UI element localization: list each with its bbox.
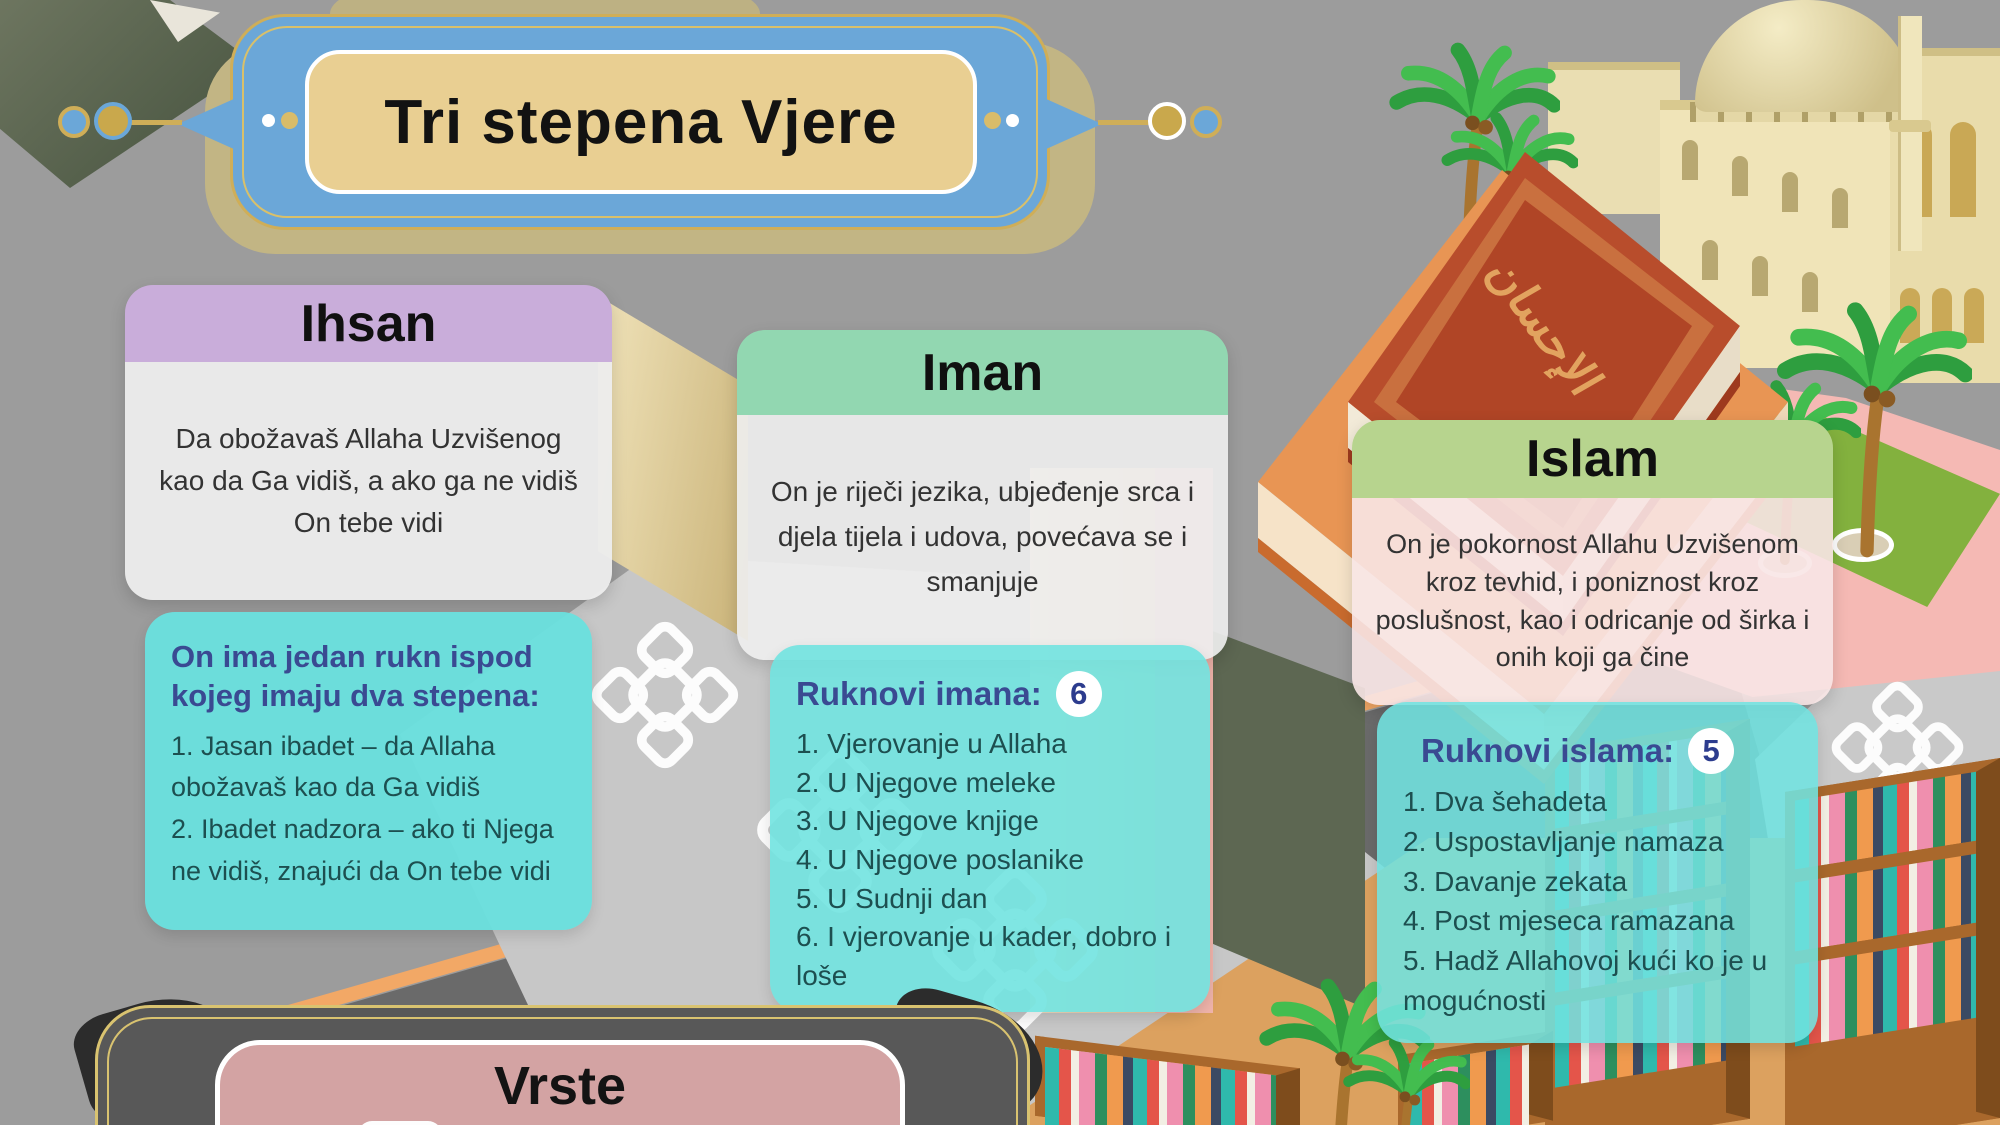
note-ihsan-heading: On ima jedan rukn ispod kojeg imaju dva … (171, 638, 568, 716)
card-iman: Iman On je riječi jezika, ubjeđenje srca… (737, 330, 1228, 660)
mosque-minaret-balcony (1889, 120, 1931, 132)
title-banner-panel: Tri stepena Vjere (305, 50, 977, 194)
note-iman-heading: Ruknovi imana: (796, 675, 1042, 713)
list-item: 1. Vjerovanje u Allaha (796, 725, 1186, 764)
banner-ornament-circle (94, 102, 132, 140)
page-title: Tri stepena Vjere (384, 87, 897, 158)
list-item: 4. U Njegove poslanike (796, 841, 1186, 880)
card-ihsan-title: Ihsan (125, 285, 612, 362)
list-item: 3. Davanje zekata (1403, 862, 1794, 902)
bottom-banner-line2: 4 zabranjenih (358, 1121, 762, 1125)
list-item: 1. Jasan ibadet – da Allaha obožavaš kao… (171, 726, 568, 810)
list-item: 2. Uspostavljanje namaza (1403, 822, 1794, 862)
mosque-minaret (1898, 16, 1922, 251)
infographic-canvas: الإحسان Tri stepena Vjere Ihsan D (0, 0, 2000, 1125)
card-islam-title: Islam (1352, 420, 1833, 498)
list-item: 5. Hadž Allahovoj kući ko je u mogućnost… (1403, 941, 1794, 1021)
mosque-window (1832, 188, 1848, 228)
banner-ornament-circle (1190, 106, 1222, 138)
note-iman: Ruknovi imana: 6 1. Vjerovanje u Allaha2… (770, 645, 1210, 1012)
banner-dot (281, 112, 298, 129)
list-item: 5. U Sudnji dan (796, 880, 1186, 919)
carpet-knot-pattern (590, 620, 740, 770)
palm-tree-icon (1340, 1032, 1470, 1125)
list-item: 2. U Njegove meleke (796, 764, 1186, 803)
banner-ornament-circle (1148, 102, 1186, 140)
list-item: 3. U Njegove knjige (796, 802, 1186, 841)
note-ihsan-items: 1. Jasan ibadet – da Allaha obožavaš kao… (171, 726, 568, 893)
list-item: 2. Ibadet nadzora – ako ti Njega ne vidi… (171, 809, 568, 893)
list-item: 6. I vjerovanje u kader, dobro i loše (796, 918, 1186, 995)
note-iman-items: 1. Vjerovanje u Allaha2. U Njegove melek… (796, 725, 1186, 995)
list-item: 1. Dva šehadeta (1403, 782, 1794, 822)
card-iman-title: Iman (737, 330, 1228, 415)
note-islam-heading: Ruknovi islama: (1421, 732, 1674, 770)
bottom-banner-panel: Vrste 4 zabranjenih (215, 1040, 905, 1125)
banner-ornament-circle (58, 106, 90, 138)
islam-count-badge: 5 (1688, 728, 1734, 774)
mosque-arch (1950, 122, 1976, 217)
note-islam: Ruknovi islama: 5 1. Dva šehadeta2. Uspo… (1377, 702, 1818, 1043)
card-ihsan: Ihsan Da obožavaš Allaha Uzvišenog kao d… (125, 285, 612, 600)
card-islam-description: On je pokornost Allahu Uzvišenom kroz te… (1352, 498, 1833, 705)
banner-dot (262, 114, 275, 127)
iman-count-badge: 6 (1056, 671, 1102, 717)
list-item: 4. Post mjeseca ramazana (1403, 901, 1794, 941)
mosque-dome (1695, 0, 1915, 112)
note-islam-items: 1. Dva šehadeta2. Uspostavljanje namaza3… (1403, 782, 1794, 1021)
bottom-banner-count: 4 (358, 1121, 442, 1125)
banner-dot (1006, 114, 1019, 127)
note-ihsan: On ima jedan rukn ispod kojeg imaju dva … (145, 612, 592, 930)
bottom-banner-line1: Vrste (494, 1055, 626, 1117)
card-iman-description: On je riječi jezika, ubjeđenje srca i dj… (737, 415, 1228, 660)
banner-dot (984, 112, 1001, 129)
card-islam: Islam On je pokornost Allahu Uzvišenom k… (1352, 420, 1833, 705)
card-ihsan-description: Da obožavaš Allaha Uzvišenog kao da Ga v… (125, 362, 612, 600)
